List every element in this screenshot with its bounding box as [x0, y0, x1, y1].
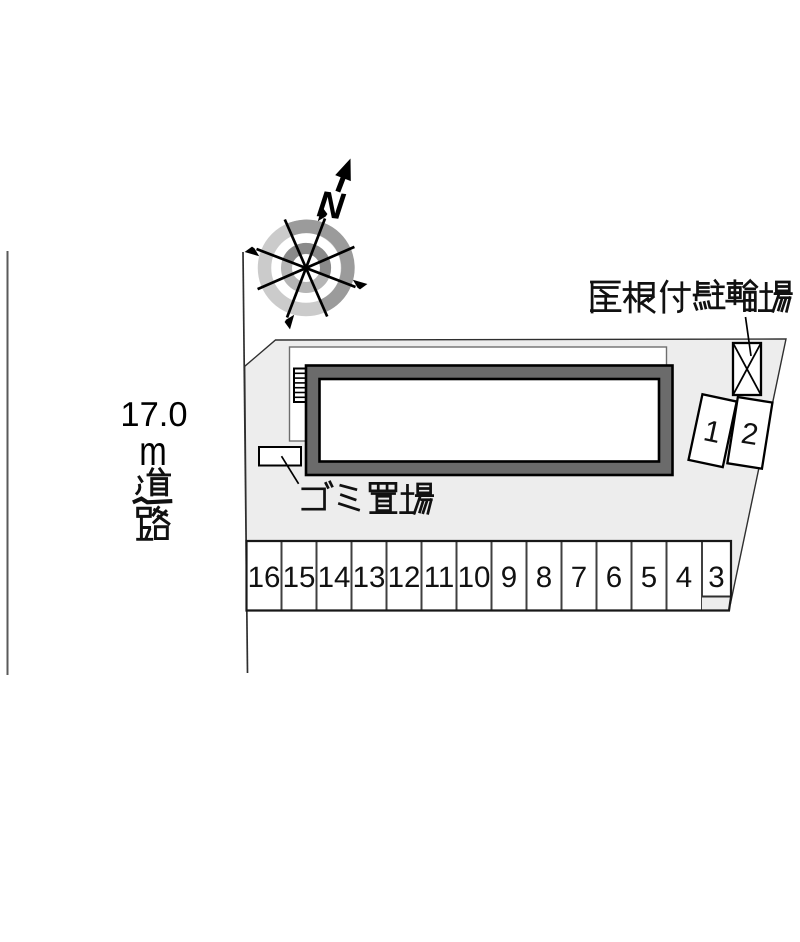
svg-text:11: 11 — [424, 561, 455, 594]
svg-text:3: 3 — [708, 561, 724, 594]
svg-text:15: 15 — [283, 561, 316, 594]
svg-text:6: 6 — [606, 561, 622, 594]
svg-text:16: 16 — [248, 561, 281, 594]
svg-text:7: 7 — [571, 561, 587, 594]
svg-text:N: N — [315, 183, 348, 227]
svg-text:m: m — [139, 428, 167, 474]
svg-text:13: 13 — [353, 561, 386, 594]
svg-text:8: 8 — [536, 561, 552, 594]
svg-text:4: 4 — [676, 561, 692, 594]
svg-text:12: 12 — [388, 561, 421, 594]
svg-text:9: 9 — [501, 561, 517, 594]
svg-text:14: 14 — [318, 561, 351, 594]
svg-text:5: 5 — [641, 561, 657, 594]
svg-text:10: 10 — [458, 561, 491, 594]
